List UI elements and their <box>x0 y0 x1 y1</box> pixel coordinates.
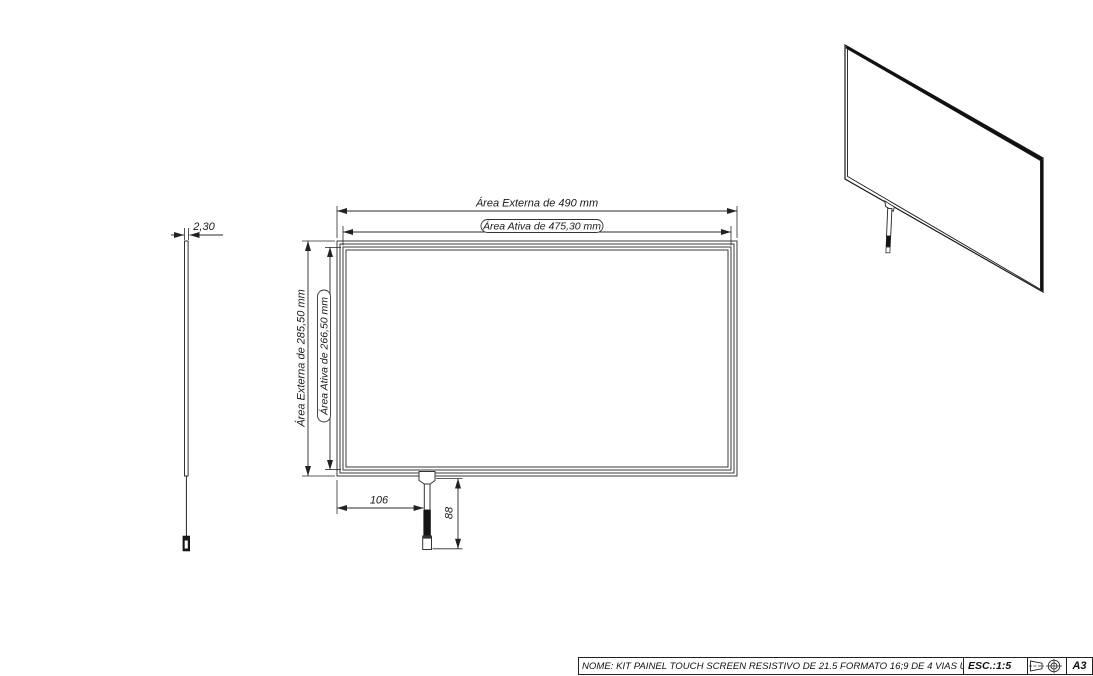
dim-tail-length-label: 88 <box>444 506 456 519</box>
dim-thickness-label: 2,30 <box>192 221 215 233</box>
iso-flex-tail <box>883 201 895 253</box>
projection-frustum-front-icon <box>1046 659 1062 673</box>
dim-width-active-label: Área Ativa de 475,30 mm <box>482 220 601 233</box>
dim-height-external-label: Área Externa de 285,50 mm <box>295 289 308 428</box>
dim-tail-offset-label: 106 <box>370 495 389 507</box>
iso-view <box>845 45 1043 292</box>
flex-tail <box>419 472 435 550</box>
title-block-sheet-size: A3 <box>1067 658 1092 674</box>
projection-frustum-side-icon <box>1029 661 1044 671</box>
panel-outer-edge <box>337 241 737 476</box>
panel-active-area-edge <box>343 247 731 470</box>
title-block-scale: ESC.:1:5 <box>964 658 1028 674</box>
title-block: NOME: KIT PAINEL TOUCH SCREEN RESISTIVO … <box>578 657 1093 675</box>
front-view: Área Externa de 490 mm Área Ativa de 475… <box>295 197 738 550</box>
dim-width-external-label: Área Externa de 490 mm <box>475 197 598 210</box>
iso-panel-outline <box>845 45 1043 292</box>
drawing-sheet: 2,30 Área Exte <box>0 0 1093 676</box>
title-block-name: NOME: KIT PAINEL TOUCH SCREEN RESISTIVO … <box>579 658 964 674</box>
side-view: 2,30 <box>171 221 223 551</box>
dim-height-active-label: Área Ativa de 266,50 mm <box>317 297 330 416</box>
title-block-projection-symbol <box>1028 658 1067 674</box>
panel-side-profile <box>185 241 189 476</box>
tail-stiffener <box>423 510 430 536</box>
dimensions: Área Externa de 490 mm Área Ativa de 475… <box>295 197 738 549</box>
